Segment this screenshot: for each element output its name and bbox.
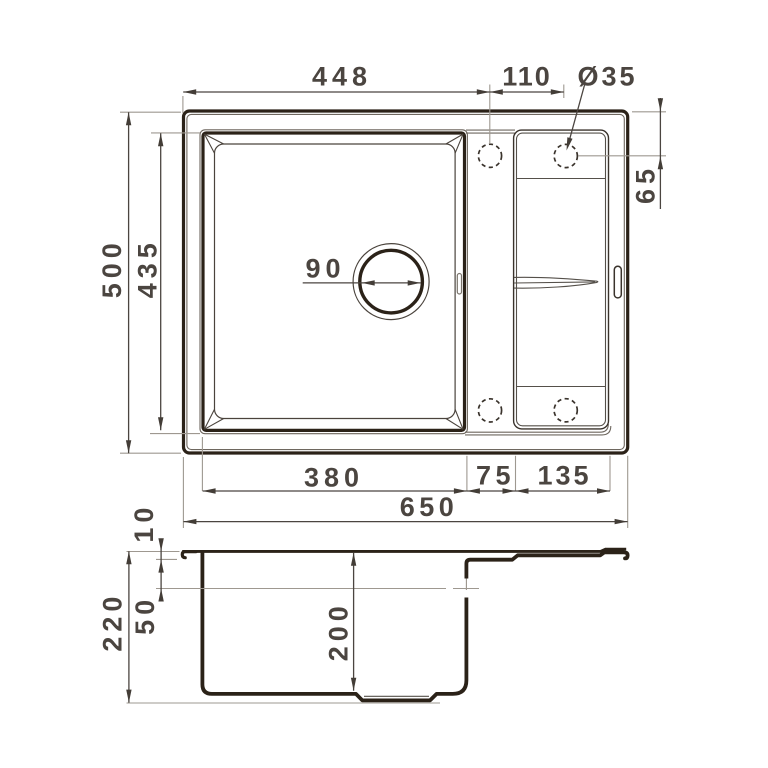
svg-text:110: 110 (502, 62, 552, 92)
svg-text:90: 90 (305, 254, 345, 284)
svg-text:380: 380 (304, 463, 364, 493)
svg-text:10: 10 (129, 503, 159, 543)
svg-text:500: 500 (97, 238, 127, 298)
svg-text:220: 220 (98, 592, 128, 652)
svg-text:448: 448 (312, 62, 372, 92)
svg-text:50: 50 (130, 595, 160, 635)
svg-text:135: 135 (537, 460, 591, 490)
svg-text:65: 65 (630, 164, 660, 204)
svg-text:200: 200 (324, 601, 354, 661)
svg-text:650: 650 (400, 492, 459, 522)
svg-text:75: 75 (476, 460, 515, 490)
svg-text:Ø35: Ø35 (577, 62, 637, 92)
svg-text:435: 435 (133, 238, 163, 298)
